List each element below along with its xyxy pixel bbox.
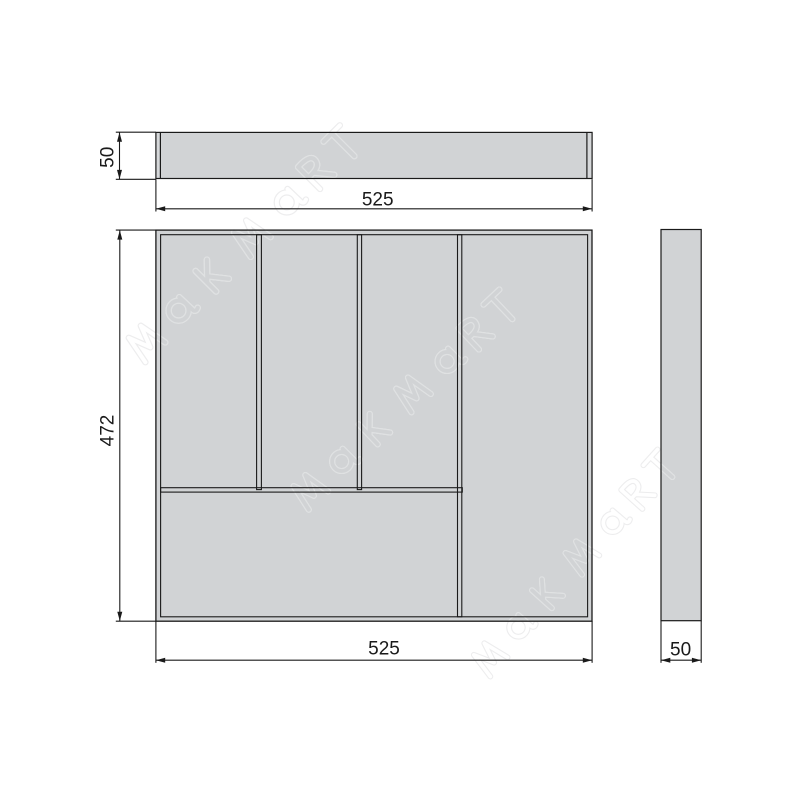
svg-text:50: 50 bbox=[98, 147, 119, 168]
svg-text:525: 525 bbox=[362, 189, 394, 210]
svg-text:472: 472 bbox=[98, 415, 119, 447]
svg-text:50: 50 bbox=[670, 640, 691, 661]
svg-text:525: 525 bbox=[368, 638, 400, 659]
